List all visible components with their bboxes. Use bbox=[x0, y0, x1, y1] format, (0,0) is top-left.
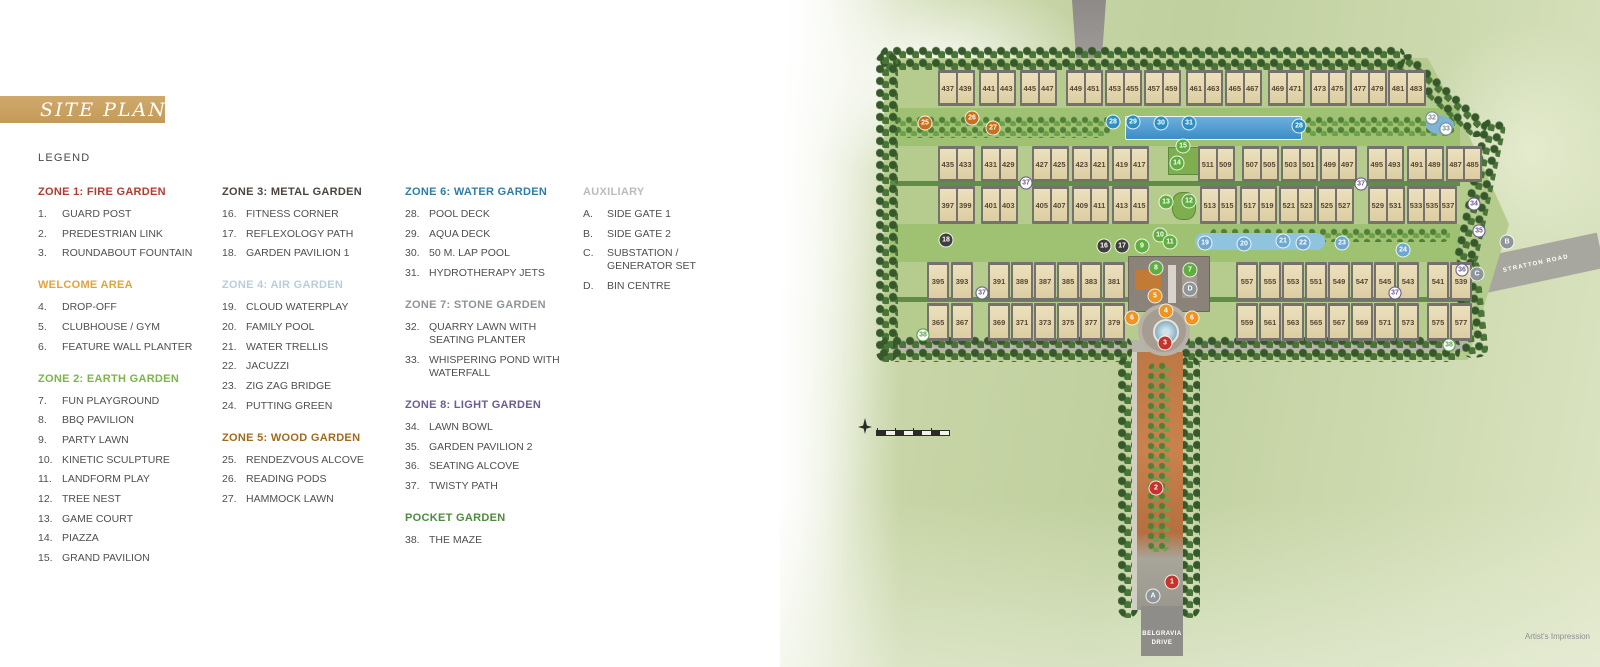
legend-item-label: TREE NEST bbox=[62, 493, 222, 506]
legend-item: 21.WATER TRELLIS bbox=[222, 341, 405, 354]
unit-number: 415 bbox=[1132, 189, 1148, 221]
building-block: 491489 bbox=[1407, 146, 1444, 182]
legend-item-number: 21. bbox=[222, 341, 246, 354]
unit-number: 489 bbox=[1427, 149, 1443, 179]
unit-number: 435 bbox=[940, 149, 956, 179]
legend-item-number: 37. bbox=[405, 480, 429, 493]
unit-number: 475 bbox=[1330, 73, 1346, 103]
unit-number: 387 bbox=[1036, 265, 1054, 298]
unit-number: 423 bbox=[1074, 149, 1090, 179]
unit-number: 483 bbox=[1408, 73, 1424, 103]
building-block: 461463 bbox=[1186, 70, 1223, 106]
building-block: 569 bbox=[1351, 303, 1373, 341]
unit-number: 477 bbox=[1352, 73, 1368, 103]
legend-item-label: SUBSTATION / GENERATOR SET bbox=[607, 247, 748, 273]
building-block: 423421 bbox=[1072, 146, 1109, 182]
legend-item-number: 17. bbox=[222, 228, 246, 241]
unit-number: 527 bbox=[1337, 189, 1353, 221]
building-block: 495493 bbox=[1367, 146, 1404, 182]
north-compass-icon bbox=[858, 418, 872, 439]
map-marker-26: 26 bbox=[966, 112, 979, 125]
unit-number: 525 bbox=[1319, 189, 1335, 221]
legend-section-title: ZONE 8: LIGHT GARDEN bbox=[405, 399, 583, 411]
legend-item: 2.PREDESTRIAN LINK bbox=[38, 228, 222, 241]
building-block: 571 bbox=[1374, 303, 1396, 341]
legend-item-number: 26. bbox=[222, 473, 246, 486]
legend-item-number: 35. bbox=[405, 441, 429, 454]
legend-item-label: FAMILY POOL bbox=[246, 321, 405, 334]
legend-item-label: KINETIC SCULPTURE bbox=[62, 454, 222, 467]
building-block: 551 bbox=[1305, 262, 1327, 301]
building-block: 391 bbox=[988, 262, 1010, 301]
map-marker-28: 28 bbox=[1107, 116, 1120, 129]
unit-number: 573 bbox=[1399, 306, 1417, 338]
legend-section: ZONE 8: LIGHT GARDEN34.LAWN BOWL35.GARDE… bbox=[405, 399, 583, 493]
unit-number: 419 bbox=[1114, 149, 1130, 179]
building-block: 395 bbox=[927, 262, 949, 301]
building-block: 373 bbox=[1034, 303, 1056, 341]
unit-number: 521 bbox=[1281, 189, 1297, 221]
map-marker-36: 36 bbox=[1456, 264, 1469, 277]
unit-number: 563 bbox=[1284, 306, 1302, 338]
unit-number: 557 bbox=[1238, 265, 1256, 298]
building-block: 431429 bbox=[981, 146, 1018, 182]
legend-item-number: 11. bbox=[38, 473, 62, 486]
building-block: 555 bbox=[1259, 262, 1281, 301]
unit-number: 529 bbox=[1370, 189, 1386, 221]
legend-item-label: CLOUD WATERPLAY bbox=[246, 301, 405, 314]
unit-number: 437 bbox=[940, 73, 956, 103]
building-block: 381 bbox=[1103, 262, 1125, 301]
legend-item-number: 5. bbox=[38, 321, 62, 334]
building-block: 529531 bbox=[1368, 186, 1405, 224]
legend-item: 37.TWISTY PATH bbox=[405, 480, 583, 493]
legend-column: AUXILIARYA.SIDE GATE 1B.SIDE GATE 2C.SUB… bbox=[583, 186, 748, 584]
unit-number: 495 bbox=[1369, 149, 1385, 179]
belgravia-drive: BELGRAVIA DRIVE bbox=[1141, 606, 1183, 656]
legend-item-number: 23. bbox=[222, 380, 246, 393]
map-marker-15: 15 bbox=[1177, 140, 1190, 153]
map-marker-37: 37 bbox=[1020, 177, 1033, 190]
unit-number: 565 bbox=[1307, 306, 1325, 338]
legend-item-label: ZIG ZAG BRIDGE bbox=[246, 380, 405, 393]
legend-item-label: SIDE GATE 2 bbox=[607, 228, 748, 241]
unit-number: 555 bbox=[1261, 265, 1279, 298]
legend-item-number: C. bbox=[583, 247, 607, 273]
legend-item: 11.LANDFORM PLAY bbox=[38, 473, 222, 486]
legend-item: 12.TREE NEST bbox=[38, 493, 222, 506]
legend-item: 13.GAME COURT bbox=[38, 513, 222, 526]
unit-number: 463 bbox=[1206, 73, 1222, 103]
lap-pool bbox=[1125, 116, 1302, 140]
building-block: 393 bbox=[951, 262, 973, 301]
map-marker-c: C bbox=[1471, 268, 1484, 281]
unit-number: 507 bbox=[1244, 149, 1260, 179]
legend-item-label: PARTY LAWN bbox=[62, 434, 222, 447]
unit-number: 471 bbox=[1288, 73, 1304, 103]
legend-column: ZONE 1: FIRE GARDEN1.GUARD POST2.PREDEST… bbox=[38, 186, 222, 584]
building-block: 559 bbox=[1236, 303, 1258, 341]
belgravia-label-line2: DRIVE bbox=[1152, 640, 1173, 646]
building-block: 473475 bbox=[1310, 70, 1347, 106]
map-marker-32: 32 bbox=[1426, 112, 1439, 125]
legend-item-number: 9. bbox=[38, 434, 62, 447]
map-marker-29: 29 bbox=[1127, 116, 1140, 129]
legend-item: 35.GARDEN PAVILION 2 bbox=[405, 441, 583, 454]
legend-item: 31.HYDROTHERAPY JETS bbox=[405, 267, 583, 280]
unit-number: 503 bbox=[1283, 149, 1299, 179]
unit-number: 501 bbox=[1301, 149, 1317, 179]
map-marker-b: B bbox=[1501, 236, 1514, 249]
legend-item: 29.AQUA DECK bbox=[405, 228, 583, 241]
map-marker-28: 28 bbox=[1293, 120, 1306, 133]
map-marker-37: 37 bbox=[976, 287, 989, 300]
map-marker-18: 18 bbox=[940, 234, 953, 247]
map-marker-38: 38 bbox=[1443, 339, 1456, 352]
legend-item-number: 3. bbox=[38, 247, 62, 260]
legend-section: POCKET GARDEN38.THE MAZE bbox=[405, 512, 583, 547]
map-marker-37: 37 bbox=[1355, 178, 1368, 191]
map-marker-d: D bbox=[1184, 283, 1197, 296]
building-block: 517519 bbox=[1240, 186, 1277, 224]
map-marker-27: 27 bbox=[987, 122, 1000, 135]
unit-number: 493 bbox=[1387, 149, 1403, 179]
legend-item-number: B. bbox=[583, 228, 607, 241]
legend-item: 38.THE MAZE bbox=[405, 534, 583, 547]
legend-item: 25.RENDEZVOUS ALCOVE bbox=[222, 454, 405, 467]
unit-number: 379 bbox=[1105, 306, 1123, 338]
map-marker-7: 7 bbox=[1184, 264, 1197, 277]
unit-number: 515 bbox=[1220, 189, 1236, 221]
unit-number: 431 bbox=[983, 149, 999, 179]
legend-item: 32.QUARRY LAWN WITH SEATING PLANTER bbox=[405, 321, 583, 347]
legend-item: 10.KINETIC SCULPTURE bbox=[38, 454, 222, 467]
legend-section: AUXILIARYA.SIDE GATE 1B.SIDE GATE 2C.SUB… bbox=[583, 186, 748, 293]
legend-item-label: DROP-OFF bbox=[62, 301, 222, 314]
unit-number: 429 bbox=[1001, 149, 1017, 179]
unit-number: 427 bbox=[1034, 149, 1050, 179]
unit-number: 535 bbox=[1425, 189, 1439, 221]
unit-number: 473 bbox=[1312, 73, 1328, 103]
unit-number: 403 bbox=[1001, 189, 1017, 221]
building-block: 371 bbox=[1011, 303, 1033, 341]
legend-section: ZONE 5: WOOD GARDEN25.RENDEZVOUS ALCOVE2… bbox=[222, 432, 405, 506]
building-block: 521523 bbox=[1279, 186, 1316, 224]
scale-bar bbox=[876, 430, 950, 436]
drive-median-trees bbox=[1148, 362, 1170, 552]
legend-item: 30.50 M. LAP POOL bbox=[405, 247, 583, 260]
legend-section-title: ZONE 2: EARTH GARDEN bbox=[38, 373, 222, 385]
legend-section: ZONE 3: METAL GARDEN16.FITNESS CORNER17.… bbox=[222, 186, 405, 260]
unit-number: 417 bbox=[1132, 149, 1148, 179]
map-marker-6: 6 bbox=[1186, 312, 1199, 325]
legend-label: LEGEND bbox=[38, 152, 90, 164]
building-block: 377 bbox=[1080, 303, 1102, 341]
legend-item-label: BBQ PAVILION bbox=[62, 414, 222, 427]
map-marker-20: 20 bbox=[1238, 238, 1251, 251]
unit-number: 531 bbox=[1388, 189, 1404, 221]
unit-number: 409 bbox=[1074, 189, 1090, 221]
legend-item: 1.GUARD POST bbox=[38, 208, 222, 221]
legend-item-number: 6. bbox=[38, 341, 62, 354]
legend-item-label: QUARRY LAWN WITH SEATING PLANTER bbox=[429, 321, 583, 347]
legend-item-number: 25. bbox=[222, 454, 246, 467]
page-title: SITE PLAN bbox=[0, 99, 167, 121]
building-block: 575 bbox=[1427, 303, 1449, 341]
legend-item: 17.REFLEXOLOGY PATH bbox=[222, 228, 405, 241]
legend-item-label: GRAND PAVILION bbox=[62, 552, 222, 565]
map-marker-13: 13 bbox=[1160, 196, 1173, 209]
legend-item-number: 34. bbox=[405, 421, 429, 434]
map-marker-4: 4 bbox=[1160, 305, 1173, 318]
site-plan-page: SITE PLAN LEGEND ZONE 1: FIRE GARDEN1.GU… bbox=[0, 0, 1600, 667]
artists-impression-note: Artist's Impression bbox=[1525, 632, 1590, 641]
legend-item-label: READING PODS bbox=[246, 473, 405, 486]
legend-item: C.SUBSTATION / GENERATOR SET bbox=[583, 247, 748, 273]
legend-item: 15.GRAND PAVILION bbox=[38, 552, 222, 565]
unit-number: 537 bbox=[1441, 189, 1455, 221]
unit-number: 553 bbox=[1284, 265, 1302, 298]
building-block: 379 bbox=[1103, 303, 1125, 341]
map-marker-23: 23 bbox=[1336, 237, 1349, 250]
map-marker-21: 21 bbox=[1277, 235, 1290, 248]
unit-number: 479 bbox=[1370, 73, 1386, 103]
legend-item-number: 36. bbox=[405, 460, 429, 473]
unit-number: 567 bbox=[1330, 306, 1348, 338]
unit-number: 425 bbox=[1052, 149, 1068, 179]
unit-number: 511 bbox=[1200, 149, 1216, 179]
building-block: 481483 bbox=[1388, 70, 1426, 106]
building-block: 577 bbox=[1450, 303, 1472, 341]
building-block: 465467 bbox=[1225, 70, 1262, 106]
unit-number: 543 bbox=[1399, 265, 1417, 298]
map-marker-11: 11 bbox=[1164, 236, 1177, 249]
legend-item: 4.DROP-OFF bbox=[38, 301, 222, 314]
map-marker-12: 12 bbox=[1183, 195, 1196, 208]
unit-number: 433 bbox=[958, 149, 974, 179]
legend-item-label: GUARD POST bbox=[62, 208, 222, 221]
unit-number: 395 bbox=[929, 265, 947, 298]
unit-number: 411 bbox=[1092, 189, 1108, 221]
unit-number: 455 bbox=[1125, 73, 1141, 103]
unit-number: 533 bbox=[1409, 189, 1423, 221]
legend-section-title: ZONE 5: WOOD GARDEN bbox=[222, 432, 405, 444]
unit-number: 549 bbox=[1330, 265, 1348, 298]
unit-number: 459 bbox=[1164, 73, 1180, 103]
unit-number: 421 bbox=[1092, 149, 1108, 179]
building-block: 573 bbox=[1397, 303, 1419, 341]
legend-item-label: GAME COURT bbox=[62, 513, 222, 526]
legend-item-number: 30. bbox=[405, 247, 429, 260]
unit-number: 391 bbox=[990, 265, 1008, 298]
unit-number: 569 bbox=[1353, 306, 1371, 338]
legend-item: 9.PARTY LAWN bbox=[38, 434, 222, 447]
legend-item-label: PUTTING GREEN bbox=[246, 400, 405, 413]
unit-number: 375 bbox=[1059, 306, 1077, 338]
belgravia-label-line1: BELGRAVIA bbox=[1142, 631, 1181, 637]
building-block: 405407 bbox=[1032, 186, 1069, 224]
legend-item: 16.FITNESS CORNER bbox=[222, 208, 405, 221]
building-block: 387 bbox=[1034, 262, 1056, 301]
map-marker-19: 19 bbox=[1199, 237, 1212, 250]
legend-item-label: FEATURE WALL PLANTER bbox=[62, 341, 222, 354]
legend-section: WELCOME AREA4.DROP-OFF5.CLUBHOUSE / GYM6… bbox=[38, 279, 222, 353]
legend-item: B.SIDE GATE 2 bbox=[583, 228, 748, 241]
legend-item-number: 18. bbox=[222, 247, 246, 260]
legend-item: 27.HAMMOCK LAWN bbox=[222, 493, 405, 506]
unit-number: 551 bbox=[1307, 265, 1325, 298]
map-marker-17: 17 bbox=[1116, 240, 1129, 253]
unit-number: 481 bbox=[1390, 73, 1406, 103]
unit-number: 451 bbox=[1086, 73, 1102, 103]
map-marker-8: 8 bbox=[1150, 262, 1163, 275]
unit-number: 541 bbox=[1429, 265, 1447, 298]
legend-item-number: A. bbox=[583, 208, 607, 221]
legend-item-label: WATER TRELLIS bbox=[246, 341, 405, 354]
map-marker-5: 5 bbox=[1149, 290, 1162, 303]
map-marker-a: A bbox=[1147, 590, 1160, 603]
legend-item-number: 8. bbox=[38, 414, 62, 427]
legend-item-number: 27. bbox=[222, 493, 246, 506]
legend-column: ZONE 3: METAL GARDEN16.FITNESS CORNER17.… bbox=[222, 186, 405, 584]
building-block: 563 bbox=[1282, 303, 1304, 341]
unit-number: 399 bbox=[958, 189, 974, 221]
building-block: 533535537 bbox=[1407, 186, 1457, 224]
unit-number: 369 bbox=[990, 306, 1008, 338]
building-block: 445447 bbox=[1020, 70, 1057, 106]
legend-section: ZONE 7: STONE GARDEN32.QUARRY LAWN WITH … bbox=[405, 299, 583, 380]
map-marker-14: 14 bbox=[1171, 157, 1184, 170]
legend-item: A.SIDE GATE 1 bbox=[583, 208, 748, 221]
unit-number: 577 bbox=[1452, 306, 1470, 338]
building-block: 499497 bbox=[1320, 146, 1357, 182]
map-marker-3: 3 bbox=[1159, 337, 1172, 350]
unit-number: 413 bbox=[1114, 189, 1130, 221]
legend-item-number: 4. bbox=[38, 301, 62, 314]
unit-number: 517 bbox=[1242, 189, 1258, 221]
building-block: 437439 bbox=[938, 70, 975, 106]
legend-item-number: 24. bbox=[222, 400, 246, 413]
legend-item-label: JACUZZI bbox=[246, 360, 405, 373]
legend-item-label: BIN CENTRE bbox=[607, 280, 748, 293]
building-block: 427425 bbox=[1032, 146, 1069, 182]
unit-number: 381 bbox=[1105, 265, 1123, 298]
legend-item-number: 20. bbox=[222, 321, 246, 334]
legend-item: 24.PUTTING GREEN bbox=[222, 400, 405, 413]
unit-number: 393 bbox=[953, 265, 971, 298]
map-marker-6: 6 bbox=[1126, 312, 1139, 325]
building-block: 561 bbox=[1259, 303, 1281, 341]
legend-section: ZONE 1: FIRE GARDEN1.GUARD POST2.PREDEST… bbox=[38, 186, 222, 260]
building-block: 397399 bbox=[938, 186, 975, 224]
legend-item-label: SIDE GATE 1 bbox=[607, 208, 748, 221]
building-block: 449451 bbox=[1066, 70, 1103, 106]
legend-item: 23.ZIG ZAG BRIDGE bbox=[222, 380, 405, 393]
legend-item: 34.LAWN BOWL bbox=[405, 421, 583, 434]
legend-section-title: ZONE 6: WATER GARDEN bbox=[405, 186, 583, 198]
legend-item-number: 29. bbox=[405, 228, 429, 241]
legend-item-number: 33. bbox=[405, 354, 429, 380]
unit-number: 485 bbox=[1465, 149, 1480, 179]
legend-section: ZONE 6: WATER GARDEN28.POOL DECK29.AQUA … bbox=[405, 186, 583, 280]
title-banner: SITE PLAN bbox=[0, 96, 165, 123]
map-marker-31: 31 bbox=[1183, 117, 1196, 130]
unit-number: 383 bbox=[1082, 265, 1100, 298]
unit-number: 405 bbox=[1034, 189, 1050, 221]
map-marker-9: 9 bbox=[1136, 240, 1149, 253]
legend-section: ZONE 2: EARTH GARDEN7.FUN PLAYGROUND8.BB… bbox=[38, 373, 222, 565]
legend-item-label: REFLEXOLOGY PATH bbox=[246, 228, 405, 241]
tree-border-top bbox=[880, 46, 1405, 70]
building-block: 541 bbox=[1427, 262, 1449, 301]
map-marker-22: 22 bbox=[1297, 237, 1310, 250]
legend-item-number: 16. bbox=[222, 208, 246, 221]
map-marker-1: 1 bbox=[1166, 576, 1179, 589]
legend-item-label: ROUNDABOUT FOUNTAIN bbox=[62, 247, 222, 260]
unit-number: 491 bbox=[1409, 149, 1425, 179]
unit-number: 513 bbox=[1202, 189, 1218, 221]
map-marker-16: 16 bbox=[1098, 240, 1111, 253]
building-block: 557 bbox=[1236, 262, 1258, 301]
legend-item-label: HAMMOCK LAWN bbox=[246, 493, 405, 506]
unit-number: 509 bbox=[1218, 149, 1234, 179]
building-block: 369 bbox=[988, 303, 1010, 341]
unit-number: 377 bbox=[1082, 306, 1100, 338]
building-block: 385 bbox=[1057, 262, 1079, 301]
legend-item: 26.READING PODS bbox=[222, 473, 405, 486]
building-block: 565 bbox=[1305, 303, 1327, 341]
legend-section-title: ZONE 1: FIRE GARDEN bbox=[38, 186, 222, 198]
legend-section-title: AUXILIARY bbox=[583, 186, 748, 198]
unit-number: 505 bbox=[1262, 149, 1278, 179]
legend-item: 8.BBQ PAVILION bbox=[38, 414, 222, 427]
legend-item-number: 2. bbox=[38, 228, 62, 241]
unit-number: 457 bbox=[1146, 73, 1162, 103]
building-block: 401403 bbox=[981, 186, 1018, 224]
map-marker-33: 33 bbox=[1440, 123, 1453, 136]
unit-number: 385 bbox=[1059, 265, 1077, 298]
unit-number: 367 bbox=[953, 306, 971, 338]
legend-item-label: PREDESTRIAN LINK bbox=[62, 228, 222, 241]
legend-section-title: WELCOME AREA bbox=[38, 279, 222, 291]
legend-item: 7.FUN PLAYGROUND bbox=[38, 395, 222, 408]
map-marker-25: 25 bbox=[919, 117, 932, 130]
legend-item-number: 22. bbox=[222, 360, 246, 373]
map-marker-37: 37 bbox=[1389, 287, 1402, 300]
unit-number: 407 bbox=[1052, 189, 1068, 221]
legend-item: 18.GARDEN PAVILION 1 bbox=[222, 247, 405, 260]
unit-number: 559 bbox=[1238, 306, 1256, 338]
building-block: 567 bbox=[1328, 303, 1350, 341]
building-block: 453455 bbox=[1105, 70, 1142, 106]
map-marker-2: 2 bbox=[1150, 482, 1163, 495]
legend-item-label: THE MAZE bbox=[429, 534, 583, 547]
building-block: 487485 bbox=[1446, 146, 1482, 182]
unit-number: 365 bbox=[929, 306, 947, 338]
building-block: 365 bbox=[927, 303, 949, 341]
legend-item-number: 13. bbox=[38, 513, 62, 526]
building-block: 413415 bbox=[1112, 186, 1149, 224]
unit-number: 389 bbox=[1013, 265, 1031, 298]
legend-column: ZONE 6: WATER GARDEN28.POOL DECK29.AQUA … bbox=[405, 186, 583, 584]
legend-item-label: AQUA DECK bbox=[429, 228, 583, 241]
legend-item-label: FITNESS CORNER bbox=[246, 208, 405, 221]
building-block: 389 bbox=[1011, 262, 1033, 301]
unit-number: 497 bbox=[1340, 149, 1356, 179]
unit-number: 461 bbox=[1188, 73, 1204, 103]
unit-number: 467 bbox=[1245, 73, 1261, 103]
unit-number: 453 bbox=[1107, 73, 1123, 103]
